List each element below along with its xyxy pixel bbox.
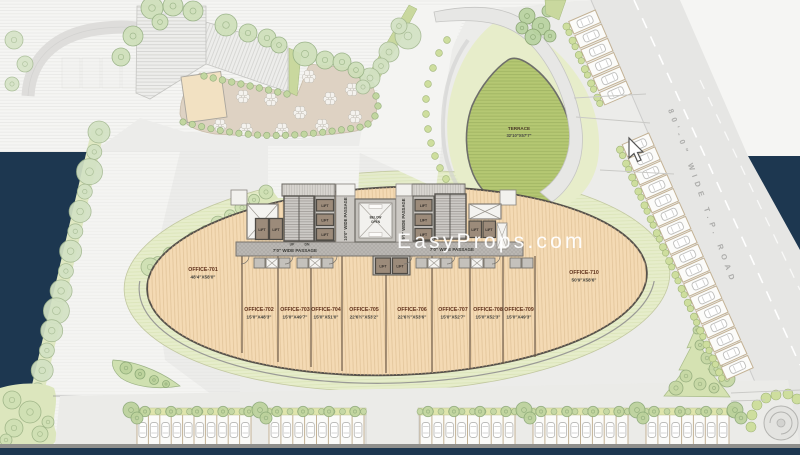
svg-text:LIFT: LIFT: [396, 265, 404, 269]
svg-text:OPEN: OPEN: [371, 220, 381, 224]
svg-text:15'0"X52'7": 15'0"X52'7": [441, 315, 466, 320]
svg-text:OFFICE-709: OFFICE-709: [504, 307, 534, 313]
svg-text:22'6½"X53'6": 22'6½"X53'6": [398, 314, 427, 320]
svg-text:LIFT: LIFT: [321, 204, 329, 208]
svg-text:15'0"X51'0": 15'0"X51'0": [314, 315, 339, 320]
svg-text:22'6½"X53'2": 22'6½"X53'2": [350, 314, 379, 320]
svg-text:OFFICE-702: OFFICE-702: [244, 307, 274, 313]
svg-text:32'10"X57'7": 32'10"X57'7": [506, 133, 531, 138]
svg-text:OFFICE-710: OFFICE-710: [569, 270, 599, 276]
svg-text:LIFT: LIFT: [420, 204, 428, 208]
svg-text:LIFT: LIFT: [420, 218, 428, 222]
svg-text:15'0"X49'3": 15'0"X49'3": [507, 315, 532, 320]
svg-text:OFFICE-703: OFFICE-703: [280, 307, 310, 313]
svg-text:LIFT: LIFT: [321, 233, 329, 237]
svg-text:TERRACE: TERRACE: [508, 126, 530, 131]
svg-text:10'0" WIDE PASSAGE: 10'0" WIDE PASSAGE: [343, 197, 348, 241]
svg-text:50'9"X58'6": 50'9"X58'6": [572, 278, 597, 283]
svg-text:OFFICE-705: OFFICE-705: [349, 307, 379, 313]
svg-text:15'0"X49'7": 15'0"X49'7": [283, 315, 308, 320]
svg-text:EasyProps.com: EasyProps.com: [397, 230, 586, 253]
svg-text:OFFICE-704: OFFICE-704: [311, 307, 341, 313]
svg-text:UP: UP: [290, 243, 295, 247]
svg-text:LIFT: LIFT: [379, 265, 387, 269]
svg-text:15'0"X48'3": 15'0"X48'3": [247, 315, 272, 320]
svg-text:OFFICE-707: OFFICE-707: [438, 307, 468, 313]
svg-text:15'0"X52'3": 15'0"X52'3": [476, 315, 501, 320]
svg-text:DN: DN: [305, 243, 310, 247]
svg-text:LIFT: LIFT: [258, 228, 266, 232]
svg-text:OFFICE-706: OFFICE-706: [397, 307, 427, 313]
svg-text:7'0" WIDE PASSAGE: 7'0" WIDE PASSAGE: [273, 248, 317, 253]
svg-text:LIFT: LIFT: [321, 218, 329, 222]
svg-text:LIFT: LIFT: [272, 228, 280, 232]
svg-text:48'4"X58'0": 48'4"X58'0": [191, 275, 216, 280]
svg-text:OFFICE-708: OFFICE-708: [473, 307, 503, 313]
svg-text:OFFICE-701: OFFICE-701: [188, 267, 218, 273]
svg-text:BELOW: BELOW: [370, 216, 382, 220]
